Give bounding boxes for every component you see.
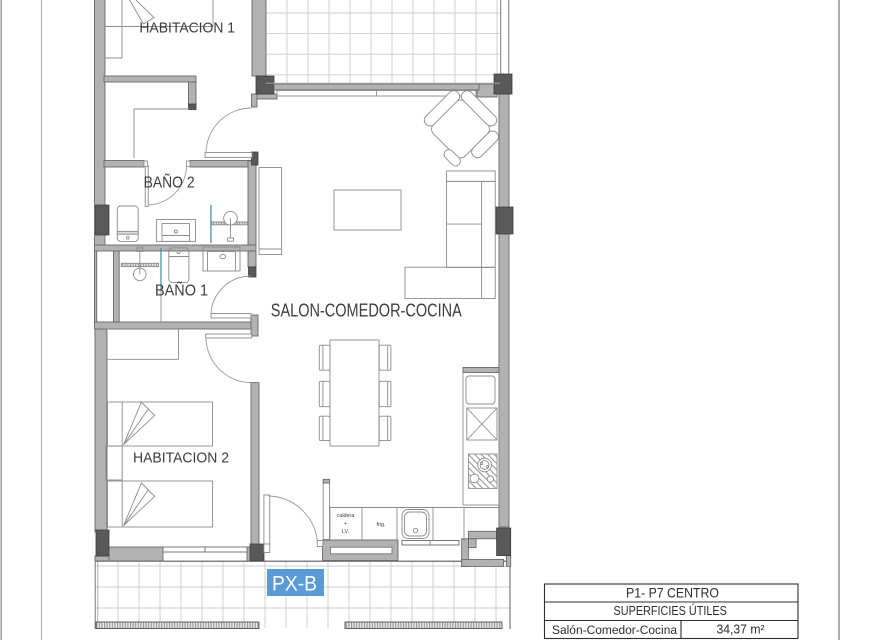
svg-text:SALON-COMEDOR-COCINA: SALON-COMEDOR-COCINA [271, 299, 462, 320]
svg-text:caldera: caldera [337, 513, 355, 519]
svg-text:BAÑO 2: BAÑO 2 [144, 175, 195, 192]
svg-text:BAÑO 1: BAÑO 1 [155, 282, 208, 299]
svg-text:Salón-Comedor-Cocina: Salón-Comedor-Cocina [552, 623, 677, 637]
svg-text:PX-B: PX-B [272, 571, 317, 595]
svg-text:HABITACION 1: HABITACION 1 [139, 20, 235, 36]
svg-text:LV.: LV. [342, 529, 349, 535]
svg-text:SUPERFICIES ÚTILES: SUPERFICIES ÚTILES [614, 603, 727, 618]
svg-text:+: + [344, 521, 347, 527]
svg-text:34,37 m²: 34,37 m² [717, 621, 766, 636]
svg-text:HABITACION 2: HABITACION 2 [133, 451, 229, 467]
svg-text:P1- P7 CENTRO: P1- P7 CENTRO [626, 586, 719, 601]
svg-text:frig.: frig. [377, 522, 386, 528]
